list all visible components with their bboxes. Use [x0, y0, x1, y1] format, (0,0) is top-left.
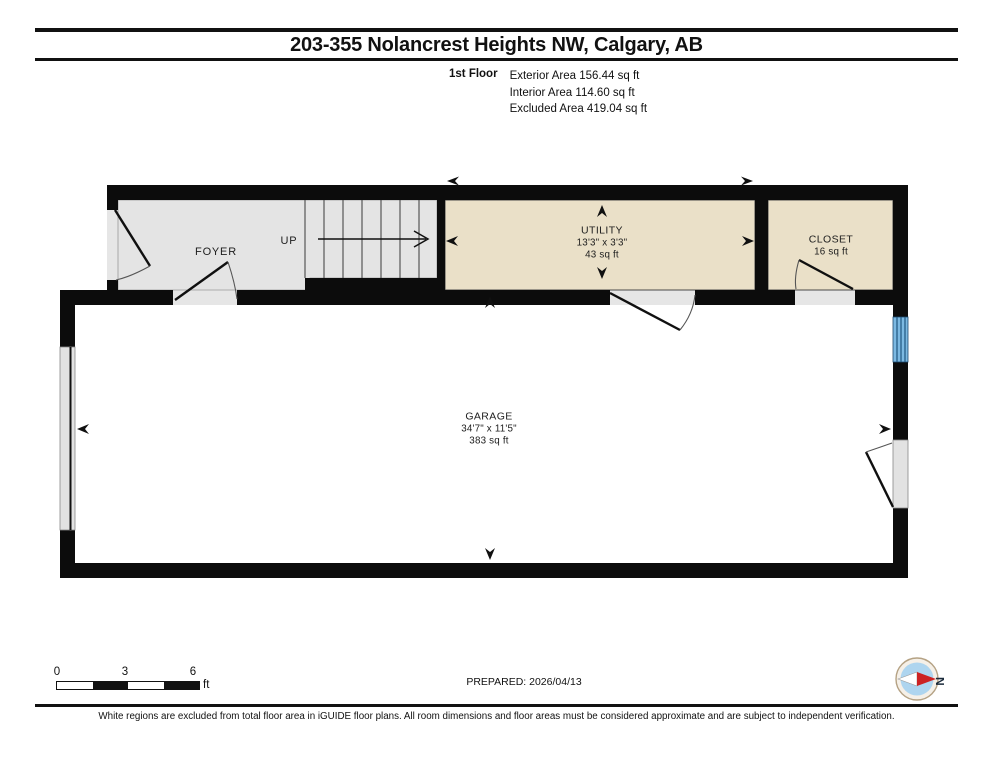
utility-label: UTILITY 13'3" x 3'3" 43 sq ft: [577, 224, 628, 262]
floorplan-page: 203-355 Nolancrest Heights NW, Calgary, …: [0, 0, 993, 768]
scale-bar: [56, 681, 200, 690]
compass-icon: N: [894, 654, 944, 704]
disclaimer-text: White regions are excluded from total fl…: [0, 711, 993, 722]
scale-tick-0: 0: [54, 666, 60, 678]
garage-down-arrow-icon: [485, 548, 495, 560]
garage-label: GARAGE 34'7" x 11'5" 383 sq ft: [461, 410, 517, 448]
window: [893, 317, 908, 362]
garage-left-arrow-icon: [77, 424, 89, 434]
garage-area: 383 sq ft: [461, 435, 517, 448]
garage-name: GARAGE: [461, 410, 517, 423]
garage-right-arrow-icon: [879, 424, 891, 434]
utility-name: UTILITY: [577, 224, 628, 237]
utility-dimensions: 13'3" x 3'3": [577, 237, 628, 250]
stairs-up-label: UP: [281, 235, 298, 248]
closet-name: CLOSET: [809, 234, 853, 247]
footer-rule: [35, 704, 958, 707]
garage-door: [60, 347, 75, 530]
scale-tick-6: 6: [190, 666, 196, 678]
foyer-label: FOYER: [195, 246, 237, 259]
garage-side-door: [866, 443, 893, 507]
garage-dimensions: 34'7" x 11'5": [461, 423, 517, 436]
prepared-date: PREPARED: 2026/04/13: [466, 676, 581, 688]
closet-area: 16 sq ft: [809, 246, 853, 259]
utility-exterior-right-arrow-icon: [741, 177, 753, 186]
closet-label: CLOSET 16 sq ft: [809, 234, 853, 259]
scale-unit-label: ft: [203, 679, 209, 691]
utility-area: 43 sq ft: [577, 249, 628, 262]
side-door-slab: [893, 440, 908, 508]
compass-north-letter: N: [933, 677, 944, 686]
scale-tick-3: 3: [122, 666, 128, 678]
floorplan-drawing: [0, 0, 993, 768]
utility-exterior-left-arrow-icon: [447, 177, 459, 186]
foyer-floor: [118, 200, 437, 290]
